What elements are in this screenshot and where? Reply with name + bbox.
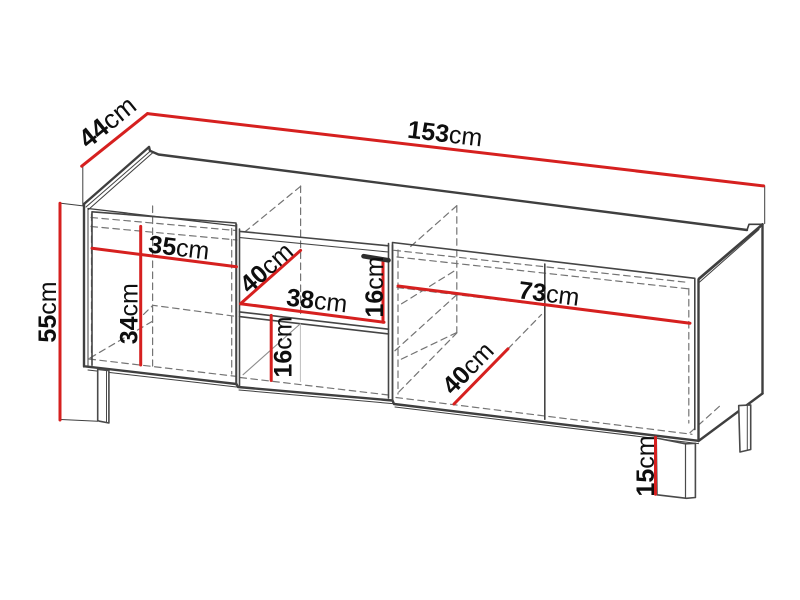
svg-text:16cm: 16cm [361,256,389,317]
svg-text:55cm: 55cm [34,281,62,342]
svg-text:16cm: 16cm [270,316,298,377]
svg-text:34cm: 34cm [115,283,143,344]
svg-text:15cm: 15cm [632,435,660,496]
